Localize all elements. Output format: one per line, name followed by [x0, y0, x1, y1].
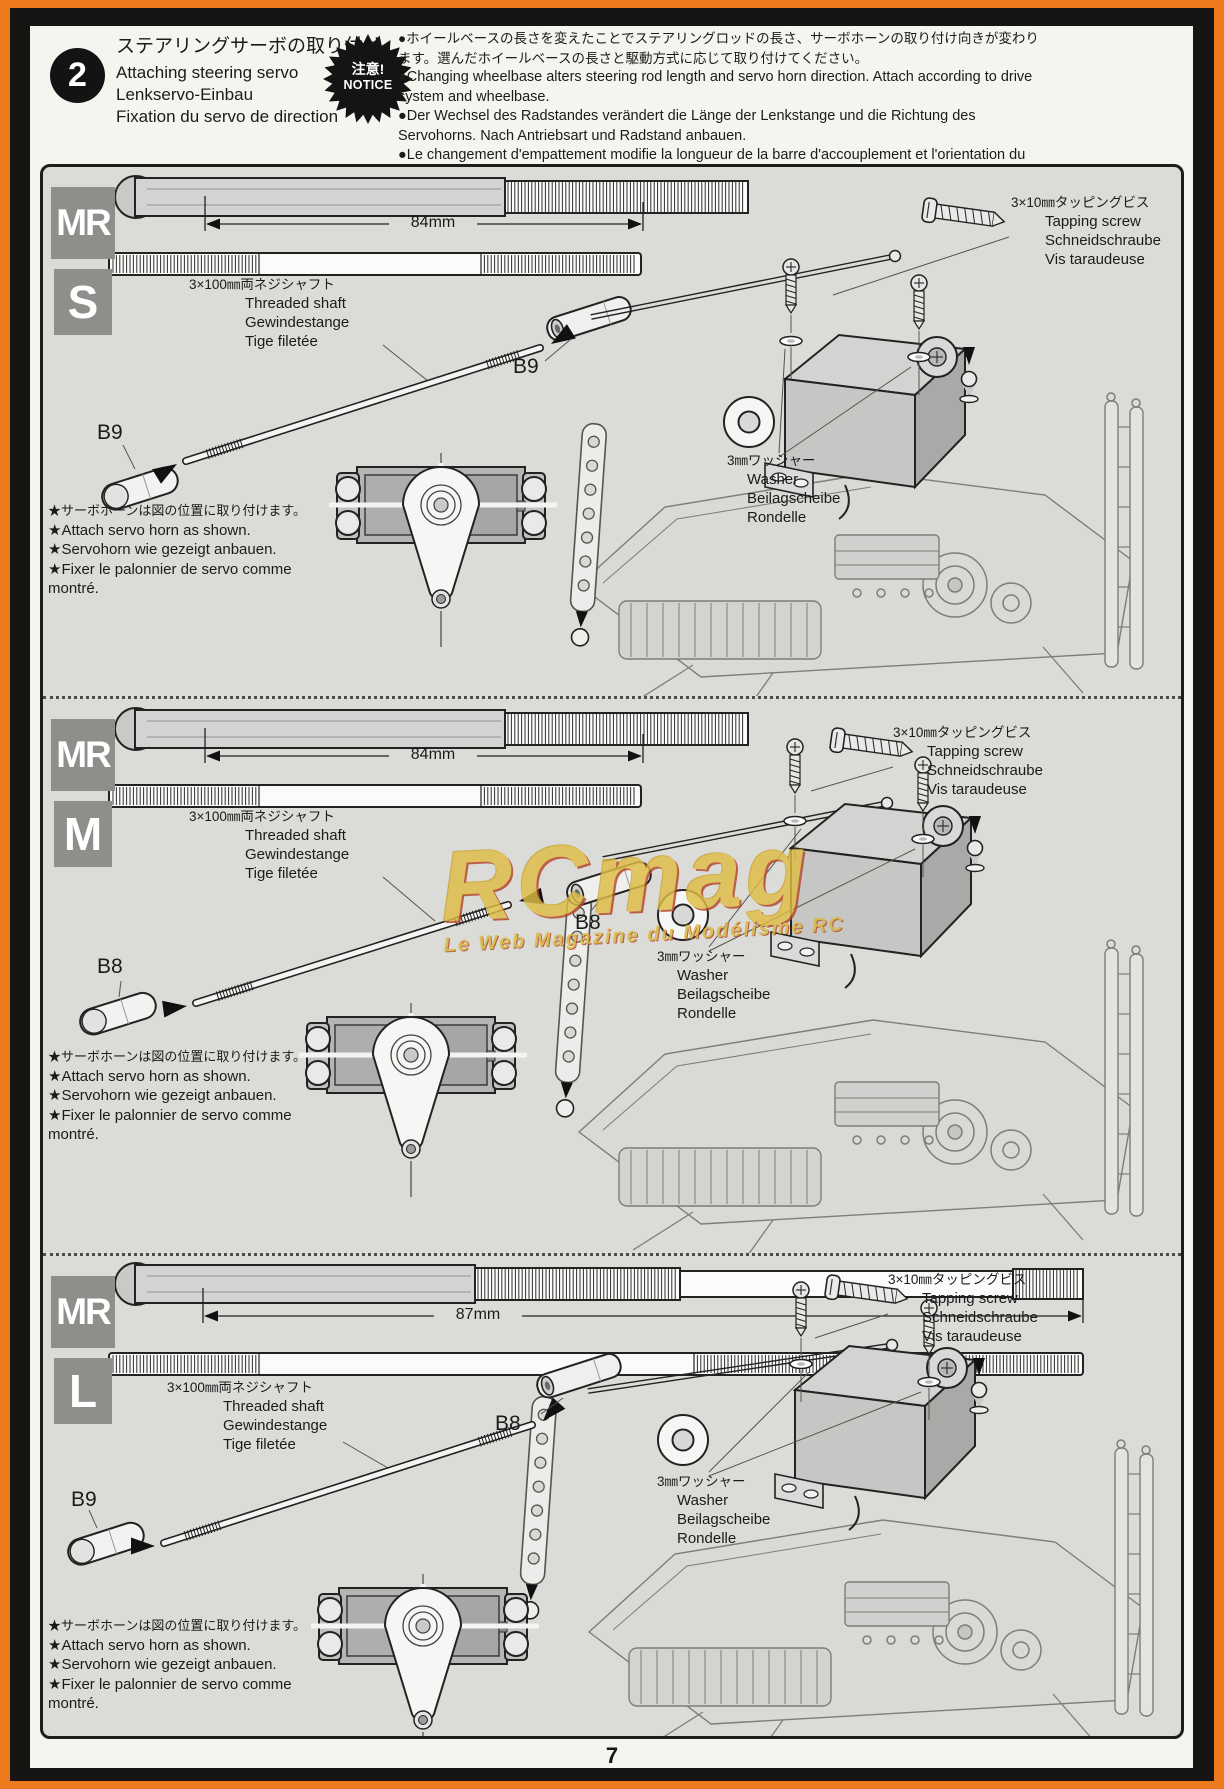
washer-fr: Rondelle: [747, 508, 840, 527]
notice-de: ●Der Wechsel des Radstandes verändert di…: [398, 107, 1042, 146]
part-label-left: B9: [71, 1488, 97, 1512]
threaded-shaft-de: Gewindestange: [223, 1416, 327, 1435]
tapping-screw-de: Schneidschraube: [927, 761, 1043, 780]
tapping-screw-fr: Vis taraudeuse: [922, 1327, 1038, 1346]
washer-label: 3㎜ワッシャー Washer Beilagscheibe Rondelle: [727, 451, 840, 527]
horn-note-en: ★Attach servo horn as shown.: [48, 1636, 324, 1656]
washer-ja: 3㎜ワッシャー: [727, 451, 840, 470]
notice-en: ●Changing wheelbase alters steering rod …: [398, 68, 1042, 107]
threaded-shaft-ja: 3×100㎜両ネジシャフト: [167, 1378, 327, 1397]
badge-wheelbase-long: L: [54, 1358, 112, 1424]
washer-ja: 3㎜ワッシャー: [657, 1472, 770, 1491]
tapping-screw-ja: 3×10㎜タッピングビス: [1011, 193, 1161, 212]
badge-wheelbase-short: S: [54, 269, 112, 335]
threaded-shaft-ja: 3×100㎜両ネジシャフト: [189, 275, 349, 294]
tapping-screw-en: Tapping screw: [922, 1289, 1038, 1308]
horn-note-de: ★Servohorn wie gezeigt anbauen.: [48, 1655, 324, 1675]
section-mr-l: MR L 87mm 3×100㎜両ネジシャフト Threaded shaft G…: [43, 1253, 1181, 1736]
threaded-shaft-fr: Tige filetée: [245, 332, 349, 351]
dimension-label: 84mm: [393, 214, 473, 232]
servo-top-view: [311, 1574, 539, 1736]
section-mr-m: RCmag Le Web Magazine du Modélisme RC MR…: [43, 696, 1181, 1253]
threaded-shaft-label: 3×100㎜両ネジシャフト Threaded shaft Gewindestan…: [189, 275, 349, 351]
manual-page: 2 ステアリングサーボの取り付け Attaching steering serv…: [0, 0, 1224, 1789]
washer-fr: Rondelle: [677, 1004, 770, 1023]
servo-top-view: [329, 453, 557, 647]
threaded-shaft-ja: 3×100㎜両ネジシャフト: [189, 807, 349, 826]
horn-note-ja: ★サーボホーンは図の位置に取り付けます。: [48, 501, 324, 521]
part-label-right: B8: [575, 911, 601, 935]
washer-en: Washer: [747, 470, 840, 489]
tapping-screw-en: Tapping screw: [1045, 212, 1161, 231]
tapping-screw-fr: Vis taraudeuse: [927, 780, 1043, 799]
washer-en: Washer: [677, 1491, 770, 1510]
threaded-shaft-de: Gewindestange: [245, 313, 349, 332]
part-label-right: B9: [513, 355, 539, 379]
dimension-label: 87mm: [438, 1306, 518, 1324]
washer-de: Beilagscheibe: [677, 1510, 770, 1529]
tapping-screw-label: 3×10㎜タッピングビス Tapping screw Schneidschrau…: [1011, 193, 1161, 269]
horn-note-en: ★Attach servo horn as shown.: [48, 1067, 324, 1087]
threaded-shaft-en: Threaded shaft: [223, 1397, 327, 1416]
badge-mr: MR: [51, 1276, 115, 1348]
servo-3d: [771, 804, 984, 988]
threaded-shaft-label: 3×100㎜両ネジシャフト Threaded shaft Gewindestan…: [167, 1378, 327, 1454]
horn-note-fr: ★Fixer le palonnier de servo comme montr…: [48, 560, 324, 599]
part-label-left: B8: [97, 955, 123, 979]
section-mr-s: MR S 84mm 3×100㎜両ネジシャフト Threaded shaft G…: [43, 167, 1181, 696]
threaded-shaft-en: Threaded shaft: [245, 826, 349, 845]
washer-fr: Rondelle: [677, 1529, 770, 1548]
horn-note-fr: ★Fixer le palonnier de servo comme montr…: [48, 1106, 324, 1145]
badge-mr: MR: [51, 719, 115, 791]
tapping-screw-label: 3×10㎜タッピングビス Tapping screw Schneidschrau…: [888, 1270, 1038, 1346]
horn-note-fr: ★Fixer le palonnier de servo comme montr…: [48, 1675, 324, 1714]
threaded-shaft-fr: Tige filetée: [223, 1435, 327, 1454]
tapping-screw-fr: Vis taraudeuse: [1045, 250, 1161, 269]
servo-horn-note: ★サーボホーンは図の位置に取り付けます。 ★Attach servo horn …: [48, 1047, 324, 1145]
washer-label: 3㎜ワッシャー Washer Beilagscheibe Rondelle: [657, 947, 770, 1023]
threaded-shaft-label: 3×100㎜両ネジシャフト Threaded shaft Gewindestan…: [189, 807, 349, 883]
servo-horn-note: ★サーボホーンは図の位置に取り付けます。 ★Attach servo horn …: [48, 501, 324, 599]
threaded-shaft-en: Threaded shaft: [245, 294, 349, 313]
horn-note-de: ★Servohorn wie gezeigt anbauen.: [48, 1086, 324, 1106]
badge-mr: MR: [51, 187, 115, 259]
notice-text: ●ホイールベースの長さを変えたことでステアリングロッドの長さ、サーボホーンの取り…: [398, 29, 1042, 185]
tapping-screw-de: Schneidschraube: [1045, 231, 1161, 250]
servo-top-view: [299, 1003, 527, 1197]
threaded-shaft-fr: Tige filetée: [245, 864, 349, 883]
horn-note-de: ★Servohorn wie gezeigt anbauen.: [48, 540, 324, 560]
threaded-shaft-de: Gewindestange: [245, 845, 349, 864]
step-number-badge: 2: [50, 48, 105, 103]
horn-note-ja: ★サーボホーンは図の位置に取り付けます。: [48, 1047, 324, 1067]
washer-de: Beilagscheibe: [677, 985, 770, 1004]
part-label-right: B8: [495, 1412, 521, 1436]
part-label-left: B9: [97, 421, 123, 445]
tapping-screw-ja: 3×10㎜タッピングビス: [893, 723, 1043, 742]
diagram-panel: MR S 84mm 3×100㎜両ネジシャフト Threaded shaft G…: [40, 164, 1184, 1739]
servo-horn-note: ★サーボホーンは図の位置に取り付けます。 ★Attach servo horn …: [48, 1616, 324, 1714]
tapping-screw-en: Tapping screw: [927, 742, 1043, 761]
tapping-screw-label: 3×10㎜タッピングビス Tapping screw Schneidschrau…: [893, 723, 1043, 799]
horn-note-en: ★Attach servo horn as shown.: [48, 521, 324, 541]
notice-ja: ●ホイールベースの長さを変えたことでステアリングロッドの長さ、サーボホーンの取り…: [398, 29, 1042, 68]
horn-note-ja: ★サーボホーンは図の位置に取り付けます。: [48, 1616, 324, 1636]
page-number: 7: [0, 1743, 1224, 1769]
tapping-screw-de: Schneidschraube: [922, 1308, 1038, 1327]
washer-de: Beilagscheibe: [747, 489, 840, 508]
washer-label: 3㎜ワッシャー Washer Beilagscheibe Rondelle: [657, 1472, 770, 1548]
badge-wheelbase-medium: M: [54, 801, 112, 867]
dimension-label: 84mm: [393, 746, 473, 764]
washer-en: Washer: [677, 966, 770, 985]
washer-ja: 3㎜ワッシャー: [657, 947, 770, 966]
tapping-screw-ja: 3×10㎜タッピングビス: [888, 1270, 1038, 1289]
